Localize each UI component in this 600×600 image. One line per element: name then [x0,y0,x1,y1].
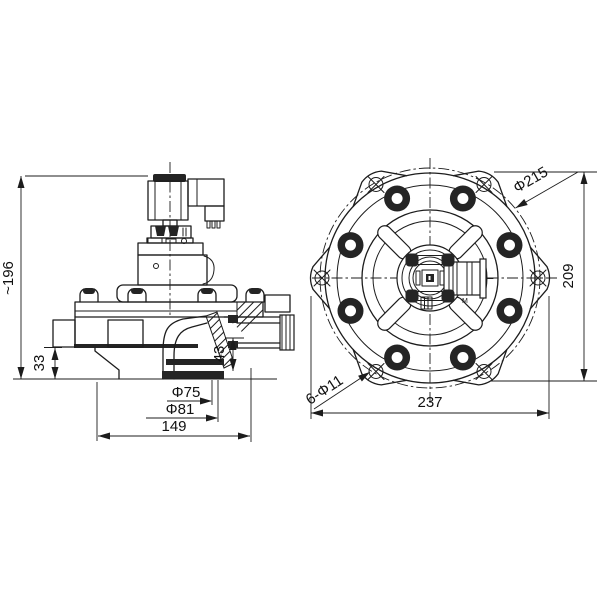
bolt [128,288,146,302]
outlet-union [265,295,290,312]
arrowhead [200,398,212,405]
dim-label: Φ215 [510,163,551,196]
valve-body [53,302,263,379]
arrowhead [18,367,25,379]
dim-label: Φ75 [172,384,201,401]
coil-end-cap [480,259,486,298]
bolt-hole [497,298,523,324]
flange-section-hatch [237,302,263,317]
bracket-pad [442,290,455,303]
arrowhead [581,172,588,184]
dim-label: ~196 [0,261,17,295]
drawing-canvas: ~196 33 43 Φ75 [0,0,600,600]
bolt-hole [450,186,476,212]
arrowhead [98,433,110,440]
arrowhead [537,410,549,417]
dim-bolt-circle: Φ215 [510,163,578,208]
dim-label: Φ81 [166,401,195,418]
arrowhead [581,369,588,381]
conduit-arm [188,179,224,206]
solenoid-conduit [188,179,224,228]
bolt [80,288,98,302]
bolt [246,288,264,302]
bolt-hole [384,186,410,212]
dim-label: 33 [31,355,48,372]
body-flange [75,302,263,317]
solenoid-coil-body [148,181,188,220]
arrowhead [311,410,323,417]
inlet-stub [53,320,75,347]
valve-engineering-drawing: ~196 33 43 Φ75 [0,0,600,600]
pilot-assembly [138,220,214,285]
valve-bonnet [80,285,264,302]
terminal-pins [207,221,220,228]
bracket-pad [406,254,419,267]
bolt [198,288,216,302]
terminal-block [205,206,224,221]
dim-label: 6-Φ11 [303,372,347,409]
outlet-end-flange [280,315,294,350]
arrowhead [52,367,59,379]
dim-label: 43 [211,346,228,363]
arrowhead [238,433,250,440]
dim-label: 209 [560,263,577,288]
arrowhead [52,348,59,360]
bolt-hole [497,232,523,258]
chamber-bulge [203,256,214,284]
bracket-pad [442,254,455,267]
upper-chamber [138,255,207,285]
diaphragm-funnel [95,348,119,379]
arrowhead [18,176,25,188]
bolt-hole [338,298,364,324]
bolt-hole [450,345,476,371]
bracket-pad [406,290,419,303]
bolt-hole [384,345,410,371]
dim-mounting-holes: 6-Φ11 [303,372,370,409]
dim-label: 237 [417,394,442,411]
dim-inlet-height: 33 [31,348,62,380]
bolt-hole [338,232,364,258]
inlet-port [108,320,143,347]
side-view: ~196 33 43 Φ75 [0,162,294,442]
coil-mark: M [462,298,468,305]
solenoid [148,174,188,220]
pilot-body [138,243,203,255]
arrowhead [516,199,528,208]
dim-label: 149 [161,418,186,435]
front-view: M Φ215 [303,158,597,419]
arrowhead [206,415,218,422]
